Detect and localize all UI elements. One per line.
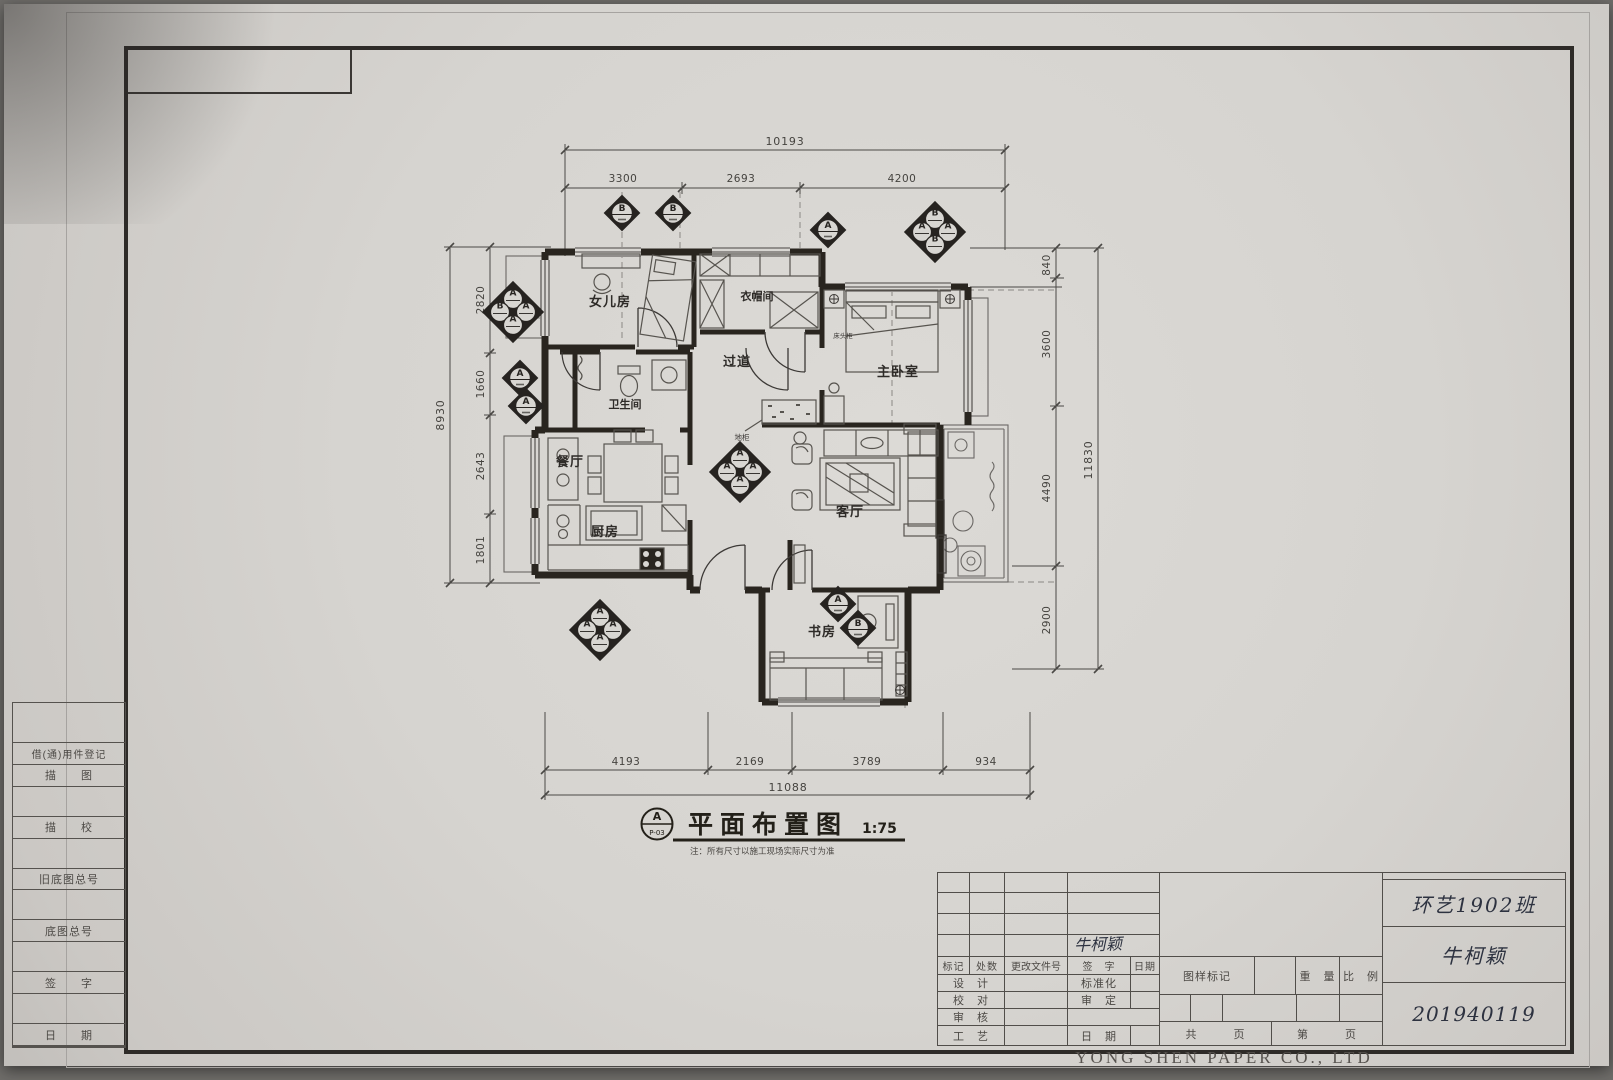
elevation-letter: A (510, 315, 517, 325)
dim-right-total: 11830 (1082, 441, 1095, 480)
room-label-study: 书房 (808, 624, 836, 640)
student-name-handwritten: 牛柯颖 (1382, 926, 1566, 983)
revision-cell (937, 892, 970, 914)
process-label: 工 艺 (937, 1025, 1005, 1046)
elevation-letter: A (510, 289, 517, 299)
elevation-letter: B (619, 204, 626, 214)
dim-bottom-total: 11088 (769, 781, 808, 794)
review-value (1004, 1008, 1068, 1026)
revision-cell (1004, 892, 1068, 914)
elevation-letter: B (670, 204, 677, 214)
dim-bottom-seg: 4193 (612, 756, 641, 768)
registration-blank (13, 942, 125, 972)
dim-bottom-seg: 934 (975, 756, 997, 768)
mark-area-blank (1159, 872, 1383, 957)
registration-blank (13, 994, 125, 1024)
signature-handwritten: 牛柯颖 (1055, 929, 1142, 958)
proofread-label: 校 对 (937, 991, 1005, 1009)
registration-label: 日 期 (13, 1024, 125, 1046)
elevation-letter: A (517, 369, 524, 379)
registration-blank (13, 839, 125, 869)
elevation-letter: A (523, 397, 530, 407)
mark-sub-cell (1222, 994, 1297, 1022)
registration-blank (13, 703, 125, 743)
photo-corner-shadow (4, 4, 324, 224)
scale-value (1339, 994, 1383, 1022)
revision-mark-label: 标记 (937, 956, 970, 975)
elevation-letter: A (825, 221, 832, 231)
dim-right-seg: 4490 (1041, 474, 1053, 503)
plan-tag-code: P-03 (649, 829, 665, 837)
dim-top-seg: 3300 (609, 173, 638, 185)
student-id-handwritten: 201940119 (1382, 982, 1566, 1046)
room-label-bathroom: 卫生间 (609, 397, 642, 411)
plan-title-group: A P-03 平面布置图 1:75 注：所有尺寸以施工现场实际尺寸为准 (642, 809, 906, 858)
registration-blank (13, 787, 125, 817)
floor-plan-drawing: 10193 3300 2693 4200 8930 2820 1660 2643… (430, 125, 1140, 870)
drawing-mark-blank (1254, 956, 1296, 995)
review-extra (1067, 1008, 1160, 1026)
elevation-letter: B (932, 235, 939, 245)
revision-sign-label: 签 字 (1067, 956, 1131, 975)
review-label: 审 核 (937, 1008, 1005, 1026)
approve-label: 审 定 (1067, 991, 1131, 1009)
elevation-letter: A (597, 633, 604, 643)
weight-label: 重 量 (1295, 956, 1340, 995)
revision-cell (969, 872, 1005, 893)
revision-cell (969, 892, 1005, 914)
dim-top-total: 10193 (766, 135, 805, 148)
elevation-letter: B (497, 302, 504, 312)
title-block: 牛柯颖 标记 处数 更改文件号 签 字 日期 设 计 标准化 校 对 审 定 审… (937, 872, 1566, 1046)
registration-strip: 借(通)用件登记 描 图 描 校 旧底图总号 底图总号 签 字 日 期 (12, 702, 126, 1048)
elevation-letter: A (835, 595, 842, 605)
mark-sub-cell (1190, 994, 1223, 1022)
elevation-letter: A (919, 222, 926, 232)
class-name-handwritten: 环艺1902班 (1382, 879, 1566, 927)
page-no-label: 第 页 (1271, 1021, 1383, 1046)
revision-cell (969, 913, 1005, 935)
elevation-letter: A (597, 607, 604, 617)
plan-tag-letter: A (653, 810, 662, 823)
total-pages-label: 共 页 (1159, 1021, 1272, 1046)
elevation-letter: A (584, 620, 591, 630)
revision-cell (937, 934, 970, 957)
mark-sub-cell (1159, 994, 1191, 1022)
weight-value (1296, 994, 1340, 1022)
dim-left-seg: 1801 (475, 536, 487, 565)
room-label-kitchen: 厨房 (591, 524, 619, 540)
room-label-daughter: 女儿房 (589, 294, 631, 310)
revision-cell (937, 913, 970, 935)
photo-of-floor-plan-sheet: { "paper": {"manufacturer": "YONG SHEN P… (0, 0, 1613, 1080)
revision-count-label: 处数 (969, 956, 1005, 975)
furniture-label-bedside: 床头柜 (833, 331, 853, 340)
elevation-letter: B (932, 209, 939, 219)
revision-cell (1004, 872, 1068, 893)
room-label-hallway: 过道 (723, 354, 751, 370)
dim-right-seg: 3600 (1041, 330, 1053, 359)
room-label-dining: 餐厅 (555, 454, 584, 470)
registration-label: 描 图 (13, 765, 125, 787)
plan-scale: 1:75 (862, 821, 897, 837)
registration-blank (13, 1046, 125, 1047)
design-value (1004, 974, 1068, 992)
date-value (1130, 1025, 1160, 1046)
registration-label: 借(通)用件登记 (13, 743, 125, 765)
revision-cell (937, 872, 970, 893)
elevation-letter: A (724, 462, 731, 472)
registration-label: 描 校 (13, 817, 125, 839)
elevation-letter: B (855, 619, 862, 629)
revision-cell (969, 934, 1005, 957)
drawing-mark-label: 图样标记 (1159, 956, 1255, 995)
elevation-letter: A (610, 620, 617, 630)
room-label-cloakroom: 衣帽间 (741, 289, 774, 303)
revision-fileno-label: 更改文件号 (1004, 956, 1068, 975)
dim-left-total: 8930 (434, 399, 447, 430)
plan-title: 平面布置图 (688, 810, 848, 839)
registration-blank (13, 890, 125, 920)
dim-left-seg: 2643 (475, 452, 487, 481)
design-label: 设 计 (937, 974, 1005, 992)
scale-label: 比 例 (1339, 956, 1383, 995)
elevation-letter: A (750, 462, 757, 472)
proofread-value (1004, 991, 1068, 1009)
dim-bottom-seg: 3789 (853, 756, 882, 768)
elevation-letter: A (737, 475, 744, 485)
standardization-value (1130, 974, 1160, 992)
elevation-letter: A (737, 449, 744, 459)
process-value (1004, 1025, 1068, 1046)
plan-note: 注：所有尺寸以施工现场实际尺寸为准 (690, 846, 835, 857)
room-label-living: 客厅 (836, 504, 864, 520)
registration-label: 底图总号 (13, 920, 125, 942)
dim-top-seg: 2693 (727, 173, 756, 185)
revision-cell (1067, 892, 1160, 914)
dim-right-seg: 840 (1041, 254, 1053, 276)
registration-label: 签 字 (13, 972, 125, 994)
paper-manufacturer-text: YONG SHEN PAPER CO., LTD (1044, 1048, 1404, 1068)
date-label: 日 期 (1067, 1025, 1131, 1046)
room-label-master: 主卧室 (877, 364, 919, 380)
revision-date-label: 日期 (1130, 956, 1160, 975)
elevation-letter: A (945, 222, 952, 232)
elevation-letter: A (523, 302, 530, 312)
dim-bottom-seg: 2169 (736, 756, 765, 768)
dim-right-seg: 2900 (1041, 606, 1053, 635)
standardization-label: 标准化 (1067, 974, 1131, 992)
approve-value (1130, 991, 1160, 1009)
dim-top-seg: 4200 (888, 173, 917, 185)
revision-cell (1067, 872, 1160, 893)
furniture-label-floor-cabinet: 地柜 (735, 432, 750, 442)
registration-label: 旧底图总号 (13, 869, 125, 891)
dim-left-seg: 1660 (475, 370, 487, 399)
